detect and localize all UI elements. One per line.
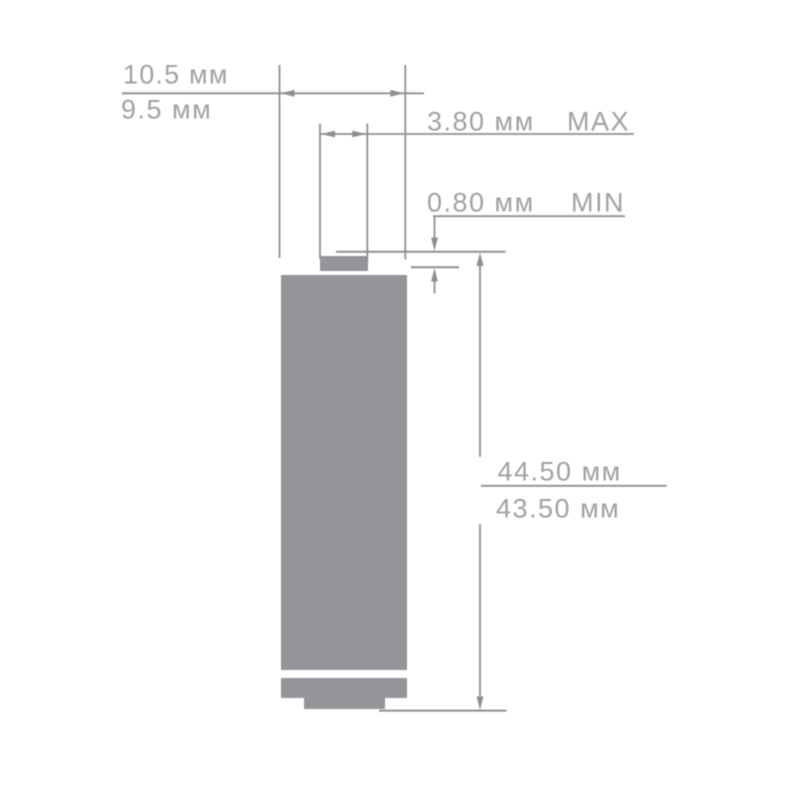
svg-text:0.80 мм: 0.80 мм xyxy=(427,188,535,218)
svg-text:43.50 мм: 43.50 мм xyxy=(496,494,620,524)
svg-text:10.5 мм: 10.5 мм xyxy=(123,60,229,90)
svg-text:MAX: MAX xyxy=(567,107,630,137)
svg-text:3.80 мм: 3.80 мм xyxy=(427,107,535,137)
svg-text:MIN: MIN xyxy=(571,188,625,218)
svg-text:44.50 мм: 44.50 мм xyxy=(498,457,622,487)
svg-text:9.5 мм: 9.5 мм xyxy=(121,95,212,125)
